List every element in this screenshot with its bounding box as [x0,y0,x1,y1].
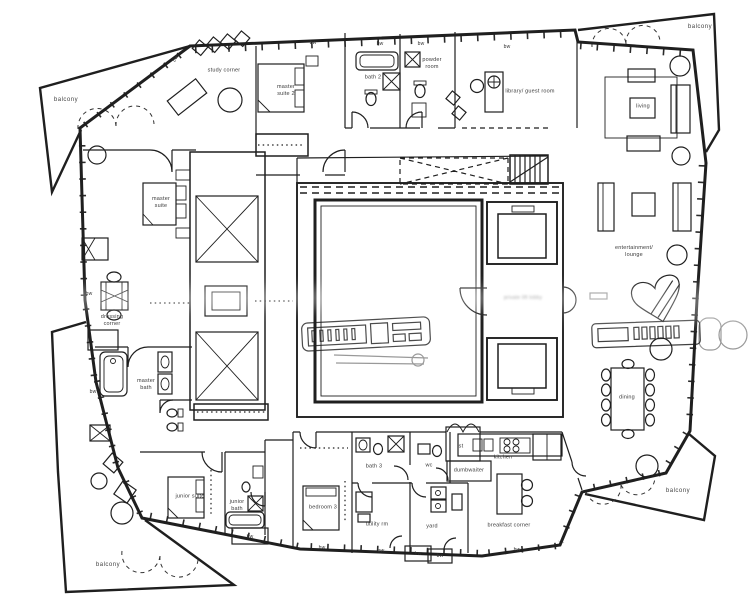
room-label-junior-suite: junior suite [176,493,205,500]
circle-doodle [650,338,672,360]
staircase [510,155,548,184]
bay-window-label: bw [514,547,521,554]
bay-window-label: bw [378,548,385,555]
master-suite-furniture [88,146,190,238]
balcony-outlines [40,14,719,592]
room-label-powder-room: powder room [422,57,441,71]
room-label-dumbwaiter: dumbwaiter [454,467,484,474]
service-shafts [196,196,258,400]
floor-plan-page: balcony balcony balcony balcony study co… [0,0,756,600]
junior-bath-fixtures [226,466,264,528]
bay-window-label: bw [310,40,317,47]
central-core [196,155,576,417]
interior-walls [83,32,582,553]
blurred-utensils [334,354,428,366]
courtyard-void [315,200,482,402]
bay-window-label: bw [437,553,444,560]
bay-window-label: bw [418,41,425,48]
room-label-master-suite-2: master suite 2 [277,84,295,98]
balcony-label-bottom-left: balcony [96,562,120,570]
wc-fixtures [418,444,442,457]
room-label-utility-rm: utility rm [366,521,388,528]
room-label-kitchen: kitchen [494,454,513,461]
watermarks [301,273,747,366]
room-label-bedroom-3: bedroom 3 [309,504,337,511]
room-label-library-guest: library/ guest room [505,88,554,95]
room-label-st: st [459,443,464,450]
dining-furniture [602,360,659,478]
balcony-label-top-left: balcony [54,97,78,105]
balcony-bottom-left-outline [52,322,234,592]
room-label-yard: yard [426,523,438,530]
bay-window-label: bw [415,551,422,558]
bay-window-label: bw [86,291,93,298]
room-label-entertainment: entertainment/ lounge [615,245,653,259]
bay-window-label: bw [377,41,384,48]
heart-doodle-icon [629,273,686,327]
furniture [82,52,691,530]
room-label-dressing-corner: dressing corner [101,314,123,328]
balcony-label-bottom-right: balcony [666,488,690,496]
room-label-study-corner: study corner [208,67,241,74]
balcony-label-top-right: balcony [688,24,712,32]
room-label-bath-3: bath 3 [366,463,383,470]
room-label-wc: wc [425,462,432,469]
balcony-dashed-arcs [78,25,660,577]
blurred-watermark-text [590,293,607,299]
floor-plan-svg [0,0,756,600]
bay-window-label: bw [319,545,326,552]
study-corner-furniture [167,79,242,115]
room-label-living: living [636,103,650,110]
blurred-gray-blob [699,318,747,350]
bay-window-label: bw [247,534,254,541]
wardrobe-closets [150,31,348,522]
breakfast-corner-furniture [497,474,533,514]
room-label-master-bath: master bath [137,378,155,392]
room-label-dining: dining [619,394,635,401]
bath-3-fixtures [356,436,404,455]
master-suite-2-furniture [256,56,318,156]
bay-window-label: bw [90,389,97,396]
room-label-junior-bath: junior bath [230,499,245,513]
room-label-bath-2: bath 2 [365,74,382,81]
bay-window-label: bw [504,44,511,51]
blurred-object-right [592,320,701,348]
room-label-breakfast: breakfast corner [488,522,531,529]
yard-appliances [431,487,462,512]
room-label-lift-lobby: private lift lobby [504,295,542,302]
skylight-void [400,158,508,184]
room-label-master-suite: master suite [152,196,170,210]
